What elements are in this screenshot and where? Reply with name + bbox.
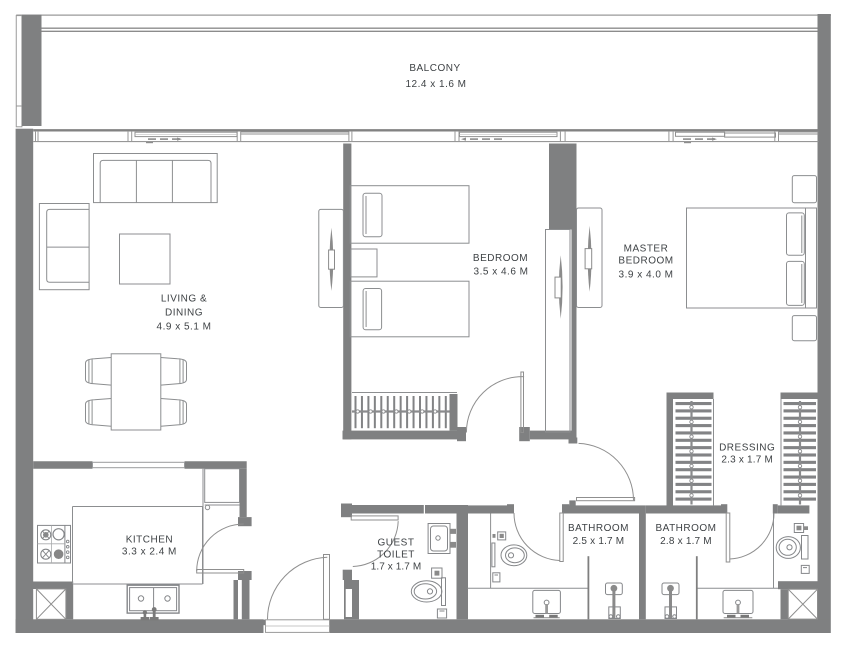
- svg-text:BALCONY: BALCONY: [409, 63, 460, 74]
- svg-text:BATHROOM: BATHROOM: [655, 523, 716, 534]
- svg-text:BEDROOM: BEDROOM: [473, 253, 528, 264]
- svg-text:3.5 x 4.6 M: 3.5 x 4.6 M: [474, 267, 529, 278]
- svg-text:1.7 x 1.7 M: 1.7 x 1.7 M: [371, 562, 422, 573]
- svg-text:3.9 x 4.0 M: 3.9 x 4.0 M: [619, 269, 674, 280]
- svg-text:12.4 x 1.6 M: 12.4 x 1.6 M: [405, 79, 466, 90]
- svg-text:MASTER: MASTER: [624, 244, 669, 255]
- svg-text:3.3 x 2.4 M: 3.3 x 2.4 M: [122, 547, 177, 558]
- svg-text:4.9 x 5.1 M: 4.9 x 5.1 M: [157, 322, 212, 333]
- svg-text:DRESSING: DRESSING: [719, 443, 775, 454]
- svg-text:BATHROOM: BATHROOM: [568, 523, 629, 534]
- svg-text:LIVING &: LIVING &: [161, 294, 207, 305]
- svg-text:BEDROOM: BEDROOM: [618, 256, 673, 267]
- svg-text:2.8 x 1.7 M: 2.8 x 1.7 M: [660, 536, 712, 547]
- svg-text:KITCHEN: KITCHEN: [126, 535, 173, 546]
- svg-text:GUEST: GUEST: [378, 538, 415, 549]
- svg-text:TOILET: TOILET: [377, 550, 415, 561]
- svg-text:2.3 x 1.7 M: 2.3 x 1.7 M: [721, 455, 773, 466]
- svg-text:2.5 x 1.7 M: 2.5 x 1.7 M: [573, 536, 625, 547]
- svg-text:DINING: DINING: [165, 308, 203, 319]
